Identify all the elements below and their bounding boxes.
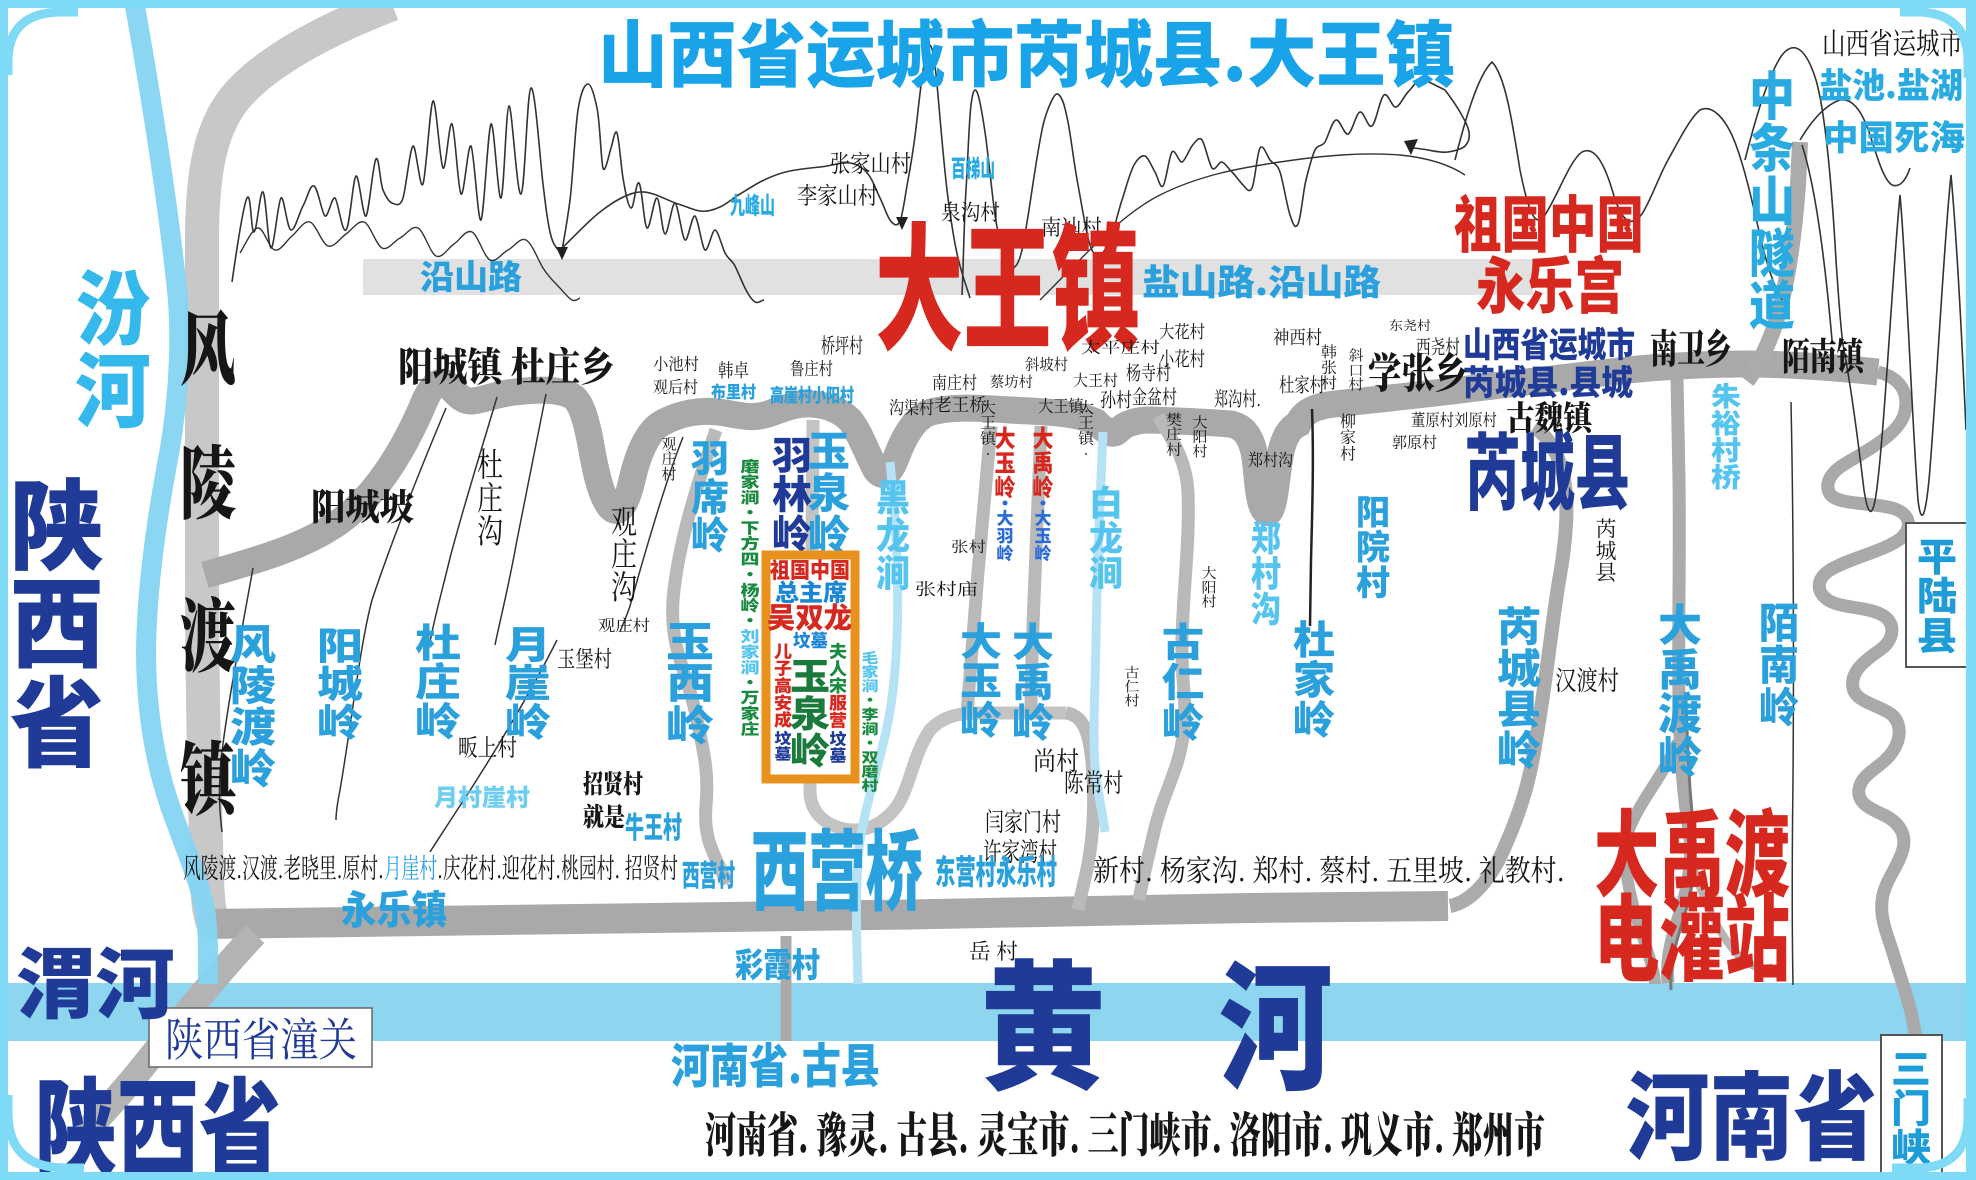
- svg-text:月崖岭: 月崖岭: [495, 624, 561, 740]
- svg-text:张家山村: 张家山村: [830, 144, 911, 179]
- svg-text:盐山路.沿山路: 盐山路.沿山路: [1142, 254, 1381, 306]
- svg-text:大阳村: 大阳村: [1190, 414, 1211, 459]
- svg-text:西营桥: 西营桥: [751, 802, 923, 929]
- svg-text:永乐宫: 永乐宫: [1476, 236, 1624, 326]
- svg-text:黑龙涧: 黑龙涧: [869, 478, 918, 591]
- svg-text:董原村刘原村: 董原村刘原村: [1411, 406, 1497, 431]
- svg-text:彩霞村: 彩霞村: [735, 938, 820, 987]
- svg-text:大禹岭: 大禹岭: [1028, 426, 1058, 500]
- svg-text:大玉岭: 大玉岭: [1031, 509, 1056, 561]
- svg-text:风陵渡岭: 风陵渡岭: [220, 622, 286, 788]
- svg-text:平陆县: 平陆县: [1908, 536, 1966, 654]
- svg-text:中国死海: 中国死海: [1823, 110, 1965, 161]
- svg-text:西尧村: 西尧村: [1416, 331, 1460, 360]
- svg-text:汉渡村: 汉渡村: [1555, 659, 1619, 698]
- svg-text:杜家岭: 杜家岭: [1284, 619, 1345, 739]
- svg-text:小花村: 小花村: [1159, 343, 1205, 372]
- svg-text:畈上村: 畈上村: [458, 728, 517, 763]
- svg-text:河南省. 豫灵. 古县. 灵宝市. 三门峡市. 洛阳市. 巩: 河南省. 豫灵. 古县. 灵宝市. 三门峡市. 洛阳市. 巩义市. 郑州市: [705, 1097, 1545, 1166]
- svg-text:渭河: 渭河: [16, 923, 175, 1035]
- svg-text:坟墓: 坟墓: [826, 730, 851, 763]
- svg-text:玉泉岭: 玉泉岭: [799, 429, 860, 555]
- svg-text:汾河: 汾河: [58, 266, 168, 430]
- svg-text:风: 风: [180, 286, 236, 401]
- svg-text:杜庄沟: 杜庄沟: [472, 447, 509, 547]
- svg-text:西营村: 西营村: [682, 851, 735, 895]
- svg-text:杜庄岭: 杜庄岭: [405, 622, 471, 740]
- svg-text:阳城岭: 阳城岭: [307, 626, 373, 740]
- svg-text:陕西省: 陕西省: [35, 1044, 281, 1180]
- svg-text:陕西省: 陕西省: [0, 474, 125, 770]
- svg-text:小池村: 小池村: [653, 350, 699, 375]
- svg-text:河: 河: [1219, 917, 1333, 1119]
- svg-text:黄: 黄: [980, 917, 1106, 1119]
- svg-text:高崖村小阳村: 高崖村小阳村: [770, 381, 854, 408]
- svg-text:山西省运城市芮城县.大王镇: 山西省运城市芮城县.大王镇: [598, 0, 1455, 103]
- svg-text:山西省运城市: 山西省运城市: [1822, 19, 1963, 63]
- svg-text:李家山村: 李家山村: [797, 176, 878, 211]
- svg-text:斜口村: 斜口村: [1346, 347, 1367, 392]
- svg-text:沟渠村: 沟渠村: [889, 394, 934, 420]
- svg-text:张村: 张村: [951, 536, 986, 557]
- svg-text:九峰山: 九峰山: [730, 186, 775, 221]
- svg-text:夫人宋服营: 夫人宋服营: [825, 642, 851, 728]
- svg-text:郑沟村.: 郑沟村.: [1214, 383, 1261, 412]
- svg-text:孙村: 孙村: [1100, 384, 1132, 413]
- svg-text:玉西岭: 玉西岭: [655, 619, 725, 745]
- svg-text:张村庙: 张村庙: [915, 575, 978, 600]
- svg-text:中条山隧道: 中条山隧道: [1739, 68, 1805, 330]
- svg-text:观庄村: 观庄村: [598, 613, 650, 636]
- svg-text:芮城县: 芮城县: [1591, 517, 1621, 583]
- svg-text:南卫乡: 南卫乡: [1650, 318, 1732, 375]
- svg-text:东营村永乐村: 东营村永乐村: [935, 845, 1057, 894]
- svg-text:就是: 就是: [583, 797, 625, 834]
- svg-text:柳家村: 柳家村: [1337, 412, 1360, 462]
- svg-text:盐池.盐湖: 盐池.盐湖: [1819, 58, 1963, 109]
- svg-text:金盆村: 金盆村: [1132, 381, 1177, 410]
- svg-text:郭原村: 郭原村: [1392, 430, 1437, 453]
- svg-text:磨家涧·下方四·杨岭·刘家涧·万家庄: 磨家涧·下方四·杨岭·刘家涧·万家庄: [737, 458, 764, 736]
- svg-text:大王镇·: 大王镇·: [1075, 399, 1098, 461]
- svg-text:羽席岭: 羽席岭: [683, 438, 738, 553]
- svg-text:观庄村: 观庄村: [659, 435, 680, 482]
- svg-text:永乐镇: 永乐镇: [341, 878, 447, 936]
- svg-text:大阳村: 大阳村: [1199, 565, 1220, 609]
- svg-text:古仁岭: 古仁岭: [1153, 621, 1214, 742]
- svg-text:招贤村: 招贤村: [583, 764, 643, 801]
- svg-text:观庄沟: 观庄沟: [606, 503, 643, 603]
- svg-text:陌南岭: 陌南岭: [1750, 601, 1808, 727]
- svg-text:坟墓: 坟墓: [793, 627, 828, 653]
- svg-text:白龙涧: 白龙涧: [1082, 484, 1131, 590]
- svg-text:三门峡: 三门峡: [1882, 1048, 1940, 1166]
- svg-text:观后村: 观后村: [653, 373, 698, 398]
- svg-text:河南省: 河南省: [1626, 1039, 1877, 1180]
- svg-text:太平庄村: 太平庄村: [1081, 335, 1160, 358]
- svg-text:玉堡村: 玉堡村: [557, 641, 612, 674]
- svg-text:布里村: 布里村: [711, 378, 756, 403]
- svg-text:郑村沟: 郑村沟: [1248, 446, 1293, 471]
- svg-text:大花村: 大花村: [1159, 318, 1205, 344]
- svg-text:陌南镇: 陌南镇: [1782, 326, 1868, 381]
- svg-text:大禹渡岭: 大禹渡岭: [1648, 602, 1712, 778]
- svg-text:韩张村: 韩张村: [1318, 343, 1341, 391]
- svg-text:朱裕村桥: 朱裕村桥: [1704, 382, 1748, 490]
- svg-text:阳院村: 阳院村: [1349, 494, 1398, 599]
- svg-text:郑村沟: 郑村沟: [1244, 519, 1288, 626]
- svg-text:陈常村: 陈常村: [1064, 763, 1123, 800]
- svg-text:河南省.古县: 河南省.古县: [671, 1027, 880, 1097]
- svg-text:斜坡村: 斜坡村: [1025, 352, 1068, 375]
- svg-text:牛王村: 牛王村: [625, 803, 682, 847]
- svg-text:神西村: 神西村: [1273, 323, 1322, 350]
- svg-text:大羽岭: 大羽岭: [993, 509, 1018, 561]
- svg-text:电灌站: 电灌站: [1594, 864, 1790, 1001]
- svg-text:毛家涧·李涧·双磨村: 毛家涧·李涧·双磨村: [858, 650, 883, 792]
- svg-text:阳城镇 杜庄乡: 阳城镇 杜庄乡: [398, 336, 615, 393]
- svg-text:樊庄村: 樊庄村: [1163, 411, 1186, 457]
- svg-text:古仁村: 古仁村: [1122, 665, 1143, 708]
- svg-text:阳城坡: 阳城坡: [311, 477, 414, 531]
- svg-text:大玉岭: 大玉岭: [990, 426, 1020, 500]
- svg-text:桥坪村: 桥坪村: [821, 330, 863, 360]
- svg-text:陵: 陵: [180, 420, 237, 535]
- svg-text:沿山路: 沿山路: [420, 250, 522, 299]
- svg-text:大禹岭: 大禹岭: [1003, 621, 1064, 742]
- svg-text:月村崖村: 月村崖村: [434, 778, 530, 813]
- svg-text:新村. 杨家沟. 郑村. 蔡村. 五里坡. 礼教村.: 新村. 杨家沟. 郑村. 蔡村. 五里坡. 礼教村.: [1093, 846, 1565, 890]
- svg-text:芮城县岭: 芮城县岭: [1487, 605, 1551, 770]
